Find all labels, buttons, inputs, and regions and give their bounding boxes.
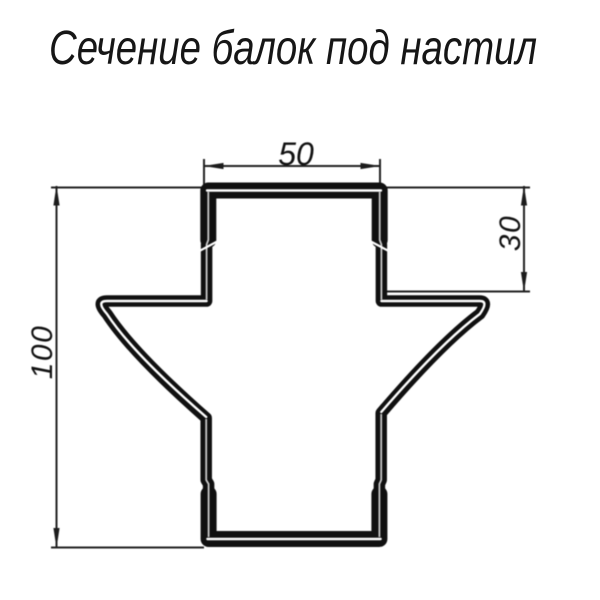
- svg-text:100: 100: [26, 325, 59, 380]
- svg-text:30: 30: [494, 215, 527, 251]
- svg-text:50: 50: [278, 136, 314, 172]
